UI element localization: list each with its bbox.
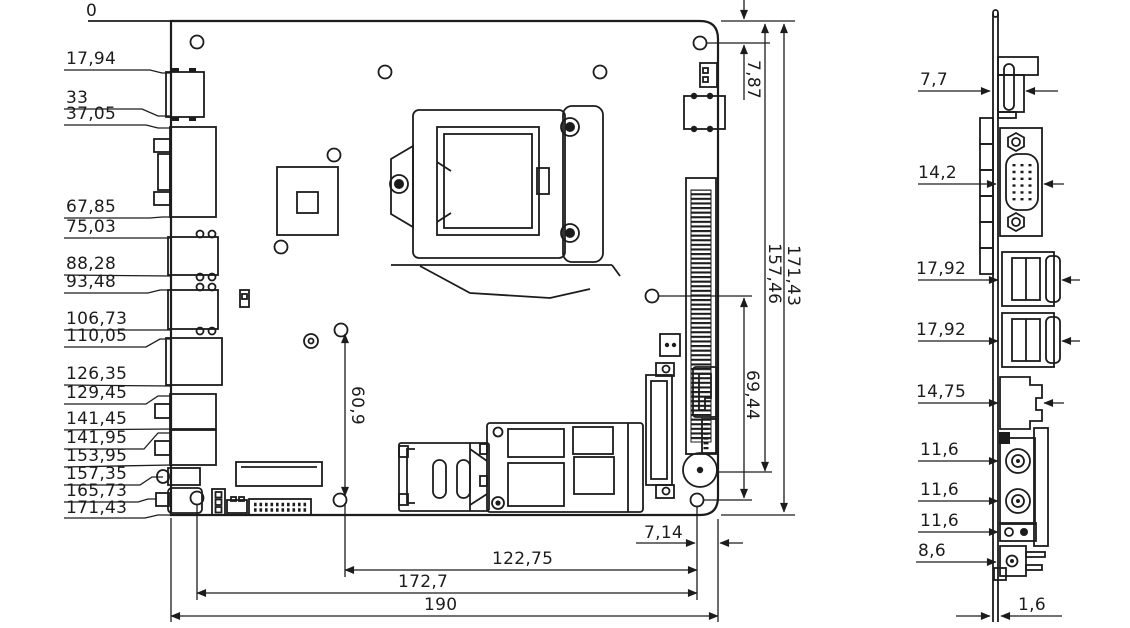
dim-usb-top-depth: 17,92: [916, 259, 966, 279]
dim-left-9: 126,35: [66, 364, 127, 384]
dim-left-8: 110,05: [66, 326, 127, 346]
usb-stack-1: [168, 231, 218, 281]
dim-board-width: 190: [424, 595, 457, 615]
dim-lan-depth: 14,75: [916, 382, 966, 402]
dc-jack-side: [994, 546, 1045, 580]
dim-hole-offset-top: 7,87: [743, 60, 763, 99]
dim-hole-edge-offset: 7,14: [644, 523, 683, 543]
dim-vga-depth: 14,2: [918, 163, 957, 183]
pcb-outline: [171, 21, 718, 515]
dim-left-16: 171,43: [66, 498, 127, 518]
dim-audio1-depth: 11,6: [920, 440, 959, 460]
motherboard-dimension-drawing: 0 17,94 33 37,0: [0, 0, 1130, 628]
optical-connector: [157, 468, 200, 485]
socket-lever: [391, 265, 620, 298]
dim-hole-span-left: 60,9: [347, 386, 367, 425]
dim-left-4: 75,03: [66, 217, 116, 237]
dim-usb-bottom-depth: 17,92: [916, 320, 966, 340]
dim-left-5: 88,28: [66, 254, 116, 274]
dim-board-height: 171,43: [783, 245, 803, 306]
usb-stack-2: [168, 284, 218, 335]
jumper-3pin: [212, 489, 225, 515]
jumper-small: [240, 290, 249, 307]
rear-io-side-view: 7,7 14,2 17,92 17,92 14,75 11,6 11,6 11,…: [916, 10, 1080, 622]
dim-left-12: 141,95: [66, 428, 127, 448]
dim-audio2-depth: 11,6: [920, 480, 959, 500]
hdmi-connector-side: [998, 57, 1038, 118]
coin-battery: [683, 453, 717, 487]
front-panel-header: [249, 499, 311, 515]
two-pin-header: [660, 334, 680, 356]
motherboard-top-view: 0 17,94 33 37,0: [64, 0, 803, 622]
sim-card-socket: [399, 443, 489, 511]
usb-stack-side-1: [1002, 252, 1060, 306]
bottom-dimensions: 7,14 122,75 172,7 190: [171, 503, 743, 622]
dim-hole-span-wide: 172,7: [398, 572, 448, 592]
dimm-slot: [686, 178, 716, 454]
cpu-socket: [390, 106, 620, 298]
dim-left-10: 129,45: [66, 383, 127, 403]
dim-connector-depth: 11,6: [920, 511, 959, 531]
dim-left-13: 153,95: [66, 446, 127, 466]
chipset: [277, 167, 338, 235]
dim-inner-height: 157,46: [764, 243, 784, 304]
cad-drawing-page: 0 17,94 33 37,0: [0, 0, 1130, 628]
audio-jacks-side: [1000, 428, 1048, 546]
dim-hdmi-depth: 7,7: [920, 70, 948, 90]
lvds-slot: [236, 462, 322, 486]
dim-origin: 0: [86, 1, 97, 21]
vga-connector-side: [1000, 128, 1042, 236]
io-bracket-profile: [980, 118, 993, 274]
usb-stack-side-2: [1002, 313, 1060, 367]
header-3pin: [227, 497, 247, 513]
dim-hole-span-bottom: 122,75: [492, 549, 553, 569]
vertical-slot-connector: [646, 363, 674, 498]
dim-left-0: 17,94: [66, 49, 116, 69]
vga-connector: [154, 127, 216, 217]
lan-connector-side: [1000, 377, 1042, 429]
dim-left-6: 93,48: [66, 272, 116, 292]
dim-pcb-thickness: 1,6: [1018, 595, 1046, 615]
dim-hole-span-right: 69,44: [742, 370, 762, 420]
audio-jack-2: [155, 430, 216, 465]
dim-dcjack-depth: 8,6: [918, 541, 946, 561]
mounting-holes: [191, 36, 707, 507]
dim-left-2: 37,05: [66, 104, 116, 124]
msata-chips: [508, 427, 614, 506]
fan-header: [700, 63, 717, 87]
dim-left-11: 141,45: [66, 409, 127, 429]
socket-screws: [390, 118, 579, 242]
msata-module: [480, 423, 643, 512]
audio-jack-1: [155, 394, 216, 429]
vertical-dimensions: 7,87 69,44 157,46 171,43 60,9: [345, 0, 803, 515]
lan-connector: [166, 338, 222, 385]
dim-left-3: 67,85: [66, 197, 116, 217]
